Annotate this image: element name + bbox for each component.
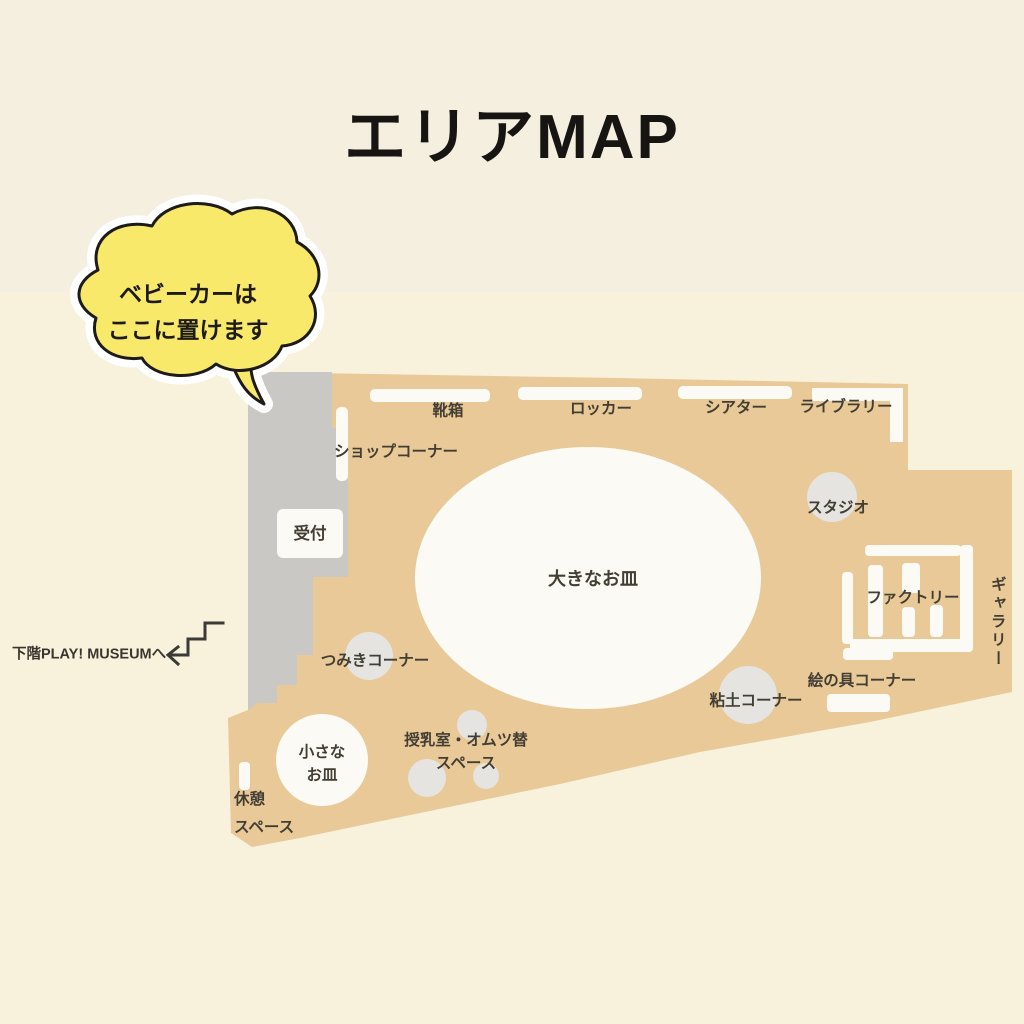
label-factory: ファクトリー <box>866 590 959 606</box>
shoe-box-shelf <box>370 389 490 402</box>
bubble-line-1: ベビーカーは <box>108 276 269 312</box>
label-rest-space: 休憩 スペース <box>234 786 294 842</box>
area-map-page: エリアMAP <box>0 0 1024 1024</box>
label-theater: シアター <box>705 400 767 416</box>
label-shoe-box: 靴箱 <box>432 403 463 419</box>
label-rest-line2: スペース <box>234 814 294 842</box>
label-reception: 受付 <box>294 526 327 543</box>
label-small-plate-line1: 小さな <box>299 741 346 764</box>
label-nursing-line2: スペース <box>404 752 528 775</box>
floor-map <box>0 0 1024 1024</box>
downstairs-museum-label: 下階PLAY! MUSEUMへ <box>12 643 166 664</box>
bubble-line-2: ここに置けます <box>108 312 269 348</box>
label-big-plate: 大きなお皿 <box>548 570 638 588</box>
label-nursing-line1: 授乳室・オムツ替 <box>404 729 528 752</box>
label-small-plate-line2: お皿 <box>299 764 346 787</box>
label-locker: ロッカー <box>570 401 632 417</box>
label-paint-corner: 絵の具コーナー <box>808 673 917 689</box>
label-clay-corner: 粘土コーナー <box>709 693 802 709</box>
stairs-down-icon <box>168 623 223 664</box>
label-blocks-corner: つみきコーナー <box>321 653 430 669</box>
label-small-plate: 小さな お皿 <box>299 741 346 787</box>
label-rest-line1: 休憩 <box>234 786 294 814</box>
locker-shelf <box>518 387 642 400</box>
theater-shelf <box>678 386 792 399</box>
stroller-bubble-text: ベビーカーは ここに置けます <box>108 276 269 348</box>
paint-corner-table-2 <box>827 694 890 712</box>
label-gallery: ギャラリー <box>989 576 1005 669</box>
label-library: ライブラリー <box>799 399 892 415</box>
label-studio: スタジオ <box>807 500 869 516</box>
label-nursing-space: 授乳室・オムツ替 スペース <box>404 729 528 775</box>
label-shop-corner: ショップコーナー <box>334 444 458 460</box>
